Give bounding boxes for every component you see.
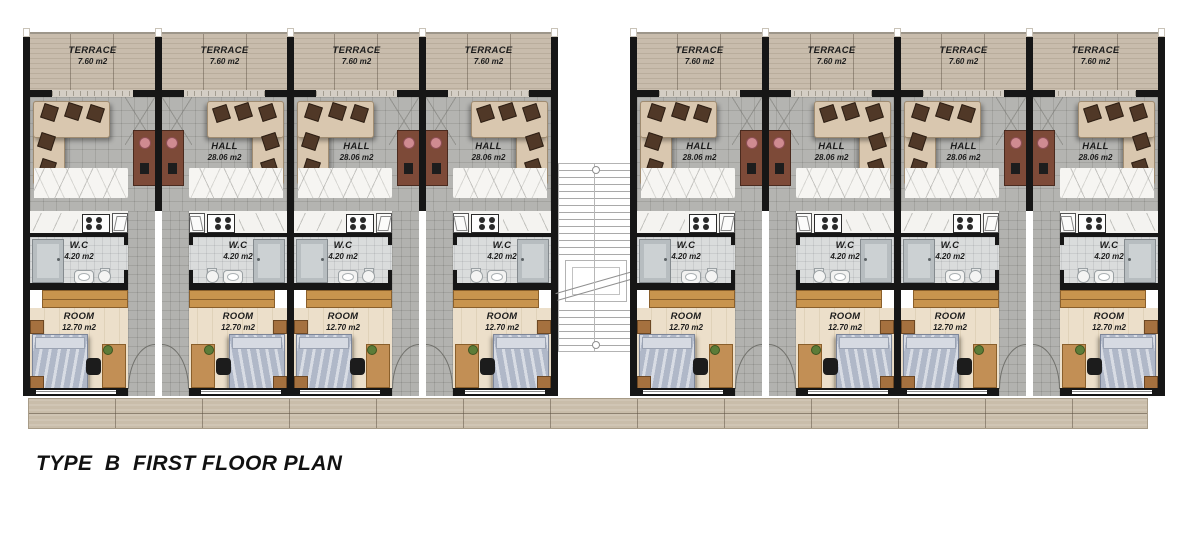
terrace-label: TERRACE7.60 m2 bbox=[426, 46, 551, 66]
toilet-icon bbox=[969, 268, 981, 282]
unit-7: TERRACE7.60 m2HALL28.06 m2W.C4.20 m2ROOM… bbox=[901, 32, 1026, 396]
pillow-icon bbox=[496, 337, 546, 349]
railing-post bbox=[630, 28, 637, 37]
wall bbox=[796, 388, 894, 396]
unit-4: TERRACE7.60 m2HALL28.06 m2W.C4.20 m2ROOM… bbox=[426, 32, 551, 396]
wall bbox=[287, 32, 294, 396]
wardrobe-gap bbox=[294, 290, 306, 308]
window-icon bbox=[643, 390, 723, 394]
desk-chair-icon bbox=[1087, 358, 1102, 375]
wall bbox=[637, 388, 735, 396]
hall-rug-icon bbox=[1060, 168, 1154, 198]
wall bbox=[30, 388, 128, 396]
pillow-icon bbox=[839, 337, 889, 349]
washbasin-icon bbox=[681, 270, 701, 284]
unit-interior: TERRACE7.60 m2HALL28.06 m2W.C4.20 m2ROOM… bbox=[294, 32, 419, 396]
bedroom bbox=[294, 290, 392, 388]
washbasin-icon bbox=[338, 270, 358, 284]
terrace-sliding-door bbox=[637, 90, 762, 97]
wardrobe-icon bbox=[306, 290, 392, 308]
chair-icon bbox=[432, 163, 441, 174]
unit-interior: TERRACE7.60 m2W.C4.20 m2ROOM12.70 m2 bbox=[30, 32, 155, 396]
sink-icon bbox=[376, 213, 392, 233]
plant-icon bbox=[711, 346, 719, 354]
wall bbox=[762, 32, 769, 211]
bedroom bbox=[453, 290, 551, 388]
unit-interior: TERRACE7.60 m2HALL28.06 m2W.C4.20 m2ROOM… bbox=[1033, 32, 1158, 396]
desk-chair-icon bbox=[957, 358, 972, 375]
pillow-icon bbox=[35, 337, 85, 349]
wc-label: W.C4.20 m2 bbox=[453, 241, 551, 261]
wc-label: W.C4.20 m2 bbox=[189, 241, 287, 261]
wc-label: W.C4.20 m2 bbox=[1060, 241, 1158, 261]
wc-label: W.C4.20 m2 bbox=[901, 241, 999, 261]
room-label: ROOM12.70 m2 bbox=[637, 312, 735, 332]
unit-8: TERRACE7.60 m2HALL28.06 m2W.C4.20 m2ROOM… bbox=[1033, 32, 1158, 396]
stove-icon bbox=[689, 214, 717, 233]
room-label: ROOM12.70 m2 bbox=[189, 312, 287, 332]
railing-post bbox=[762, 28, 769, 37]
kitchenette bbox=[189, 211, 287, 237]
chair-icon bbox=[140, 163, 149, 174]
hall-rug-icon bbox=[34, 168, 128, 198]
terrace-label: TERRACE7.60 m2 bbox=[901, 46, 1026, 66]
counter-pattern bbox=[846, 213, 892, 231]
wall bbox=[1060, 283, 1158, 290]
terrace-label: TERRACE7.60 m2 bbox=[162, 46, 287, 66]
stove-icon bbox=[1078, 214, 1106, 233]
room-label: ROOM12.70 m2 bbox=[796, 312, 894, 332]
wall bbox=[453, 283, 551, 290]
wall bbox=[1158, 32, 1165, 396]
hall-label: HALL28.06 m2 bbox=[426, 142, 551, 162]
kitchenette bbox=[901, 211, 999, 237]
room-label: ROOM12.70 m2 bbox=[453, 312, 551, 332]
window-icon bbox=[907, 390, 987, 394]
counter-pattern bbox=[239, 213, 285, 231]
washbasin-icon bbox=[945, 270, 965, 284]
wall bbox=[419, 32, 426, 211]
desk-chair-icon bbox=[693, 358, 708, 375]
plant-icon bbox=[469, 346, 477, 354]
hall-label: HALL28.06 m2 bbox=[769, 142, 894, 162]
wc-label: W.C4.20 m2 bbox=[637, 241, 735, 261]
wardrobe-icon bbox=[913, 290, 999, 308]
window-icon bbox=[465, 390, 545, 394]
unit-5: TERRACE7.60 m2HALL28.06 m2W.C4.20 m2ROOM… bbox=[637, 32, 762, 396]
wall bbox=[294, 388, 392, 396]
chair-icon bbox=[139, 137, 151, 149]
wall bbox=[189, 388, 287, 396]
wardrobe-gap bbox=[901, 290, 913, 308]
unit-2: TERRACE7.60 m2HALL28.06 m2W.C4.20 m2ROOM… bbox=[162, 32, 287, 396]
kitchenette bbox=[30, 211, 128, 237]
desk-chair-icon bbox=[823, 358, 838, 375]
stove-icon bbox=[814, 214, 842, 233]
room-label: ROOM12.70 m2 bbox=[30, 312, 128, 332]
terrace-label: TERRACE7.60 m2 bbox=[294, 46, 419, 66]
wardrobe-icon bbox=[649, 290, 735, 308]
wall bbox=[630, 32, 637, 396]
railing-post bbox=[1158, 28, 1165, 37]
stair-post-top bbox=[592, 166, 600, 174]
sink-icon bbox=[112, 213, 128, 233]
unit-interior: TERRACE7.60 m2HALL28.06 m2W.C4.20 m2ROOM… bbox=[426, 32, 551, 396]
window-icon bbox=[808, 390, 888, 394]
stove-icon bbox=[346, 214, 374, 233]
terrace-sliding-door bbox=[30, 90, 155, 97]
chair-icon bbox=[747, 163, 756, 174]
toilet-icon bbox=[98, 268, 110, 282]
railing-post bbox=[894, 28, 901, 37]
hall-rug-icon bbox=[298, 168, 392, 198]
plant-icon bbox=[975, 346, 983, 354]
hall-label: HALL28.06 m2 bbox=[294, 142, 419, 162]
pillow-icon bbox=[642, 337, 692, 349]
sink-icon bbox=[796, 213, 812, 233]
plant-icon bbox=[1076, 346, 1084, 354]
bedroom bbox=[1060, 290, 1158, 388]
stair-post-bottom bbox=[592, 341, 600, 349]
railing-post bbox=[23, 28, 30, 37]
terrace-label: TERRACE7.60 m2 bbox=[30, 46, 155, 66]
pillow-icon bbox=[1103, 337, 1153, 349]
railing-post bbox=[419, 28, 426, 37]
counter-pattern bbox=[903, 213, 949, 231]
toilet-icon bbox=[705, 268, 717, 282]
kitchenette bbox=[637, 211, 735, 237]
wall bbox=[453, 388, 551, 396]
wall bbox=[294, 283, 392, 290]
kitchenette bbox=[1060, 211, 1158, 237]
plant-icon bbox=[368, 346, 376, 354]
wall bbox=[551, 32, 558, 396]
hall-rug-icon bbox=[453, 168, 547, 198]
sink-icon bbox=[719, 213, 735, 233]
wall bbox=[796, 283, 894, 290]
left-block: TERRACE7.60 m2W.C4.20 m2ROOM12.70 m2 bbox=[23, 30, 558, 396]
wall bbox=[1026, 32, 1033, 211]
washbasin-icon bbox=[487, 270, 507, 284]
terrace-label: TERRACE7.60 m2 bbox=[1033, 46, 1158, 66]
plan-title: TYPE B FIRST FLOOR PLAN bbox=[36, 452, 342, 476]
stair-rail bbox=[594, 164, 595, 351]
stove-icon bbox=[471, 214, 499, 233]
terrace-label: TERRACE7.60 m2 bbox=[769, 46, 894, 66]
right-block: TERRACE7.60 m2HALL28.06 m2W.C4.20 m2ROOM… bbox=[630, 30, 1165, 396]
hall-label: HALL28.06 m2 bbox=[1033, 142, 1158, 162]
wall bbox=[189, 283, 287, 290]
terrace-sliding-door bbox=[162, 90, 287, 97]
terrace-sliding-door bbox=[426, 90, 551, 97]
wardrobe-gap bbox=[539, 290, 551, 308]
toilet-icon bbox=[362, 268, 374, 282]
wall bbox=[23, 32, 30, 396]
wall bbox=[1060, 388, 1158, 396]
unit-1: TERRACE7.60 m2W.C4.20 m2ROOM12.70 m2 bbox=[30, 32, 155, 396]
wardrobe-gap bbox=[30, 290, 42, 308]
wardrobe-gap bbox=[882, 290, 894, 308]
desk-chair-icon bbox=[480, 358, 495, 375]
bedroom bbox=[901, 290, 999, 388]
sink-icon bbox=[453, 213, 469, 233]
window-icon bbox=[300, 390, 380, 394]
wall bbox=[30, 283, 128, 290]
washbasin-icon bbox=[74, 270, 94, 284]
wc-label: W.C4.20 m2 bbox=[30, 241, 128, 261]
dining-table-icon bbox=[133, 130, 156, 186]
railing-post bbox=[1026, 28, 1033, 37]
bedroom bbox=[30, 290, 128, 388]
kitchenette bbox=[796, 211, 894, 237]
desk-chair-icon bbox=[350, 358, 365, 375]
kitchenette bbox=[453, 211, 551, 237]
unit-interior: TERRACE7.60 m2HALL28.06 m2W.C4.20 m2ROOM… bbox=[637, 32, 762, 396]
wardrobe-gap bbox=[1146, 290, 1158, 308]
walkway bbox=[28, 398, 1148, 429]
pillow-icon bbox=[299, 337, 349, 349]
toilet-icon bbox=[814, 268, 826, 282]
wardrobe-icon bbox=[189, 290, 275, 308]
terrace-sliding-door bbox=[901, 90, 1026, 97]
plant-icon bbox=[104, 346, 112, 354]
terrace-label: TERRACE7.60 m2 bbox=[637, 46, 762, 66]
railing-post bbox=[155, 28, 162, 37]
floor-plan-canvas: TERRACE7.60 m2W.C4.20 m2ROOM12.70 m2 bbox=[0, 0, 1200, 545]
bedroom bbox=[189, 290, 287, 388]
plant-icon bbox=[812, 346, 820, 354]
pillow-icon bbox=[906, 337, 956, 349]
room-label: ROOM12.70 m2 bbox=[1060, 312, 1158, 332]
wc-label: W.C4.20 m2 bbox=[796, 241, 894, 261]
washbasin-icon bbox=[830, 270, 850, 284]
sink-icon bbox=[1060, 213, 1076, 233]
unit-3: TERRACE7.60 m2HALL28.06 m2W.C4.20 m2ROOM… bbox=[294, 32, 419, 396]
unit-interior: TERRACE7.60 m2HALL28.06 m2W.C4.20 m2ROOM… bbox=[769, 32, 894, 396]
terrace-sliding-door bbox=[294, 90, 419, 97]
hall-label: HALL28.06 m2 bbox=[901, 142, 1026, 162]
counter-pattern bbox=[639, 213, 685, 231]
staircase bbox=[558, 163, 632, 352]
counter-pattern bbox=[296, 213, 342, 231]
hall-rug-icon bbox=[905, 168, 999, 198]
window-icon bbox=[36, 390, 116, 394]
wall bbox=[901, 283, 999, 290]
chair-icon bbox=[775, 163, 784, 174]
wardrobe-gap bbox=[275, 290, 287, 308]
chair-icon bbox=[404, 163, 413, 174]
wall bbox=[894, 32, 901, 396]
stove-icon bbox=[82, 214, 110, 233]
toilet-icon bbox=[1078, 268, 1090, 282]
unit-6: TERRACE7.60 m2HALL28.06 m2W.C4.20 m2ROOM… bbox=[769, 32, 894, 396]
hall-label: HALL28.06 m2 bbox=[162, 142, 287, 162]
sink-icon bbox=[189, 213, 205, 233]
counter-pattern bbox=[503, 213, 549, 231]
washbasin-icon bbox=[1094, 270, 1114, 284]
desk-chair-icon bbox=[216, 358, 231, 375]
bedroom bbox=[637, 290, 735, 388]
railing-post bbox=[551, 28, 558, 37]
hall-label: HALL28.06 m2 bbox=[637, 142, 762, 162]
wall bbox=[155, 32, 162, 211]
chair-icon bbox=[1011, 163, 1020, 174]
window-icon bbox=[1072, 390, 1152, 394]
room-label: ROOM12.70 m2 bbox=[901, 312, 999, 332]
hall-rug-icon bbox=[796, 168, 890, 198]
unit-interior: TERRACE7.60 m2HALL28.06 m2W.C4.20 m2ROOM… bbox=[901, 32, 1026, 396]
toilet-icon bbox=[207, 268, 219, 282]
terrace-sliding-door bbox=[1033, 90, 1158, 97]
toilet-icon bbox=[471, 268, 483, 282]
wall bbox=[637, 283, 735, 290]
wall bbox=[901, 388, 999, 396]
bedroom bbox=[796, 290, 894, 388]
stove-icon bbox=[953, 214, 981, 233]
terrace-sliding-door bbox=[769, 90, 894, 97]
room-label: ROOM12.70 m2 bbox=[294, 312, 392, 332]
chair-icon bbox=[1039, 163, 1048, 174]
wardrobe-icon bbox=[42, 290, 128, 308]
unit-interior: TERRACE7.60 m2HALL28.06 m2W.C4.20 m2ROOM… bbox=[162, 32, 287, 396]
window-icon bbox=[201, 390, 281, 394]
washbasin-icon bbox=[223, 270, 243, 284]
plant-icon bbox=[205, 346, 213, 354]
counter-pattern bbox=[1110, 213, 1156, 231]
railing-post bbox=[287, 28, 294, 37]
stair-flight-upper bbox=[559, 164, 631, 256]
pillow-icon bbox=[232, 337, 282, 349]
chair-icon bbox=[168, 163, 177, 174]
wardrobe-gap bbox=[637, 290, 649, 308]
desk-chair-icon bbox=[86, 358, 101, 375]
wardrobe-icon bbox=[1060, 290, 1146, 308]
wardrobe-icon bbox=[453, 290, 539, 308]
hall-rug-icon bbox=[641, 168, 735, 198]
stove-icon bbox=[207, 214, 235, 233]
kitchenette bbox=[294, 211, 392, 237]
wardrobe-icon bbox=[796, 290, 882, 308]
wc-label: W.C4.20 m2 bbox=[294, 241, 392, 261]
sink-icon bbox=[983, 213, 999, 233]
counter-pattern bbox=[32, 213, 78, 231]
hall-rug-icon bbox=[189, 168, 283, 198]
